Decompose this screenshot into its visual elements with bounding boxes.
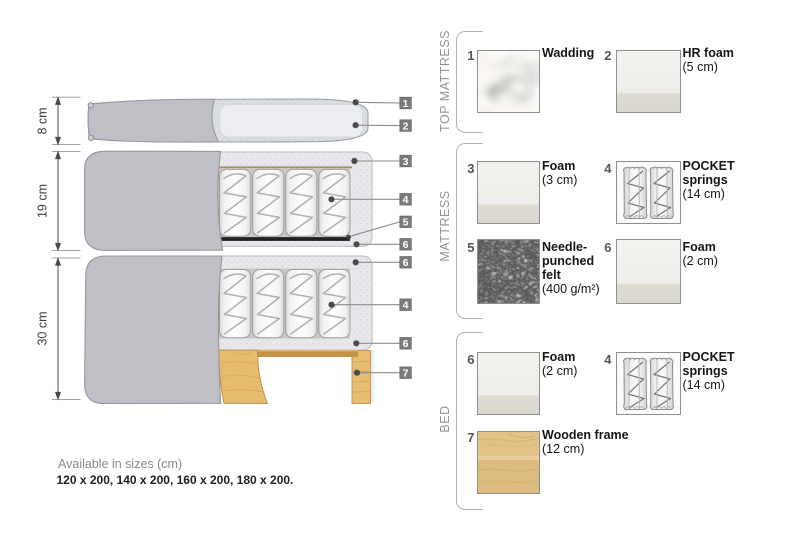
svg-text:6: 6: [403, 257, 409, 269]
svg-text:6: 6: [403, 239, 409, 251]
svg-text:8 cm: 8 cm: [36, 107, 50, 134]
svg-text:7: 7: [403, 368, 409, 380]
svg-text:4: 4: [403, 300, 409, 312]
svg-text:19 cm: 19 cm: [36, 184, 50, 218]
svg-text:6: 6: [403, 338, 409, 350]
svg-text:3: 3: [403, 156, 409, 168]
svg-text:4: 4: [403, 194, 409, 206]
svg-text:2: 2: [403, 121, 409, 133]
svg-text:1: 1: [403, 98, 409, 110]
svg-text:5: 5: [403, 217, 409, 229]
svg-text:30 cm: 30 cm: [36, 311, 50, 345]
